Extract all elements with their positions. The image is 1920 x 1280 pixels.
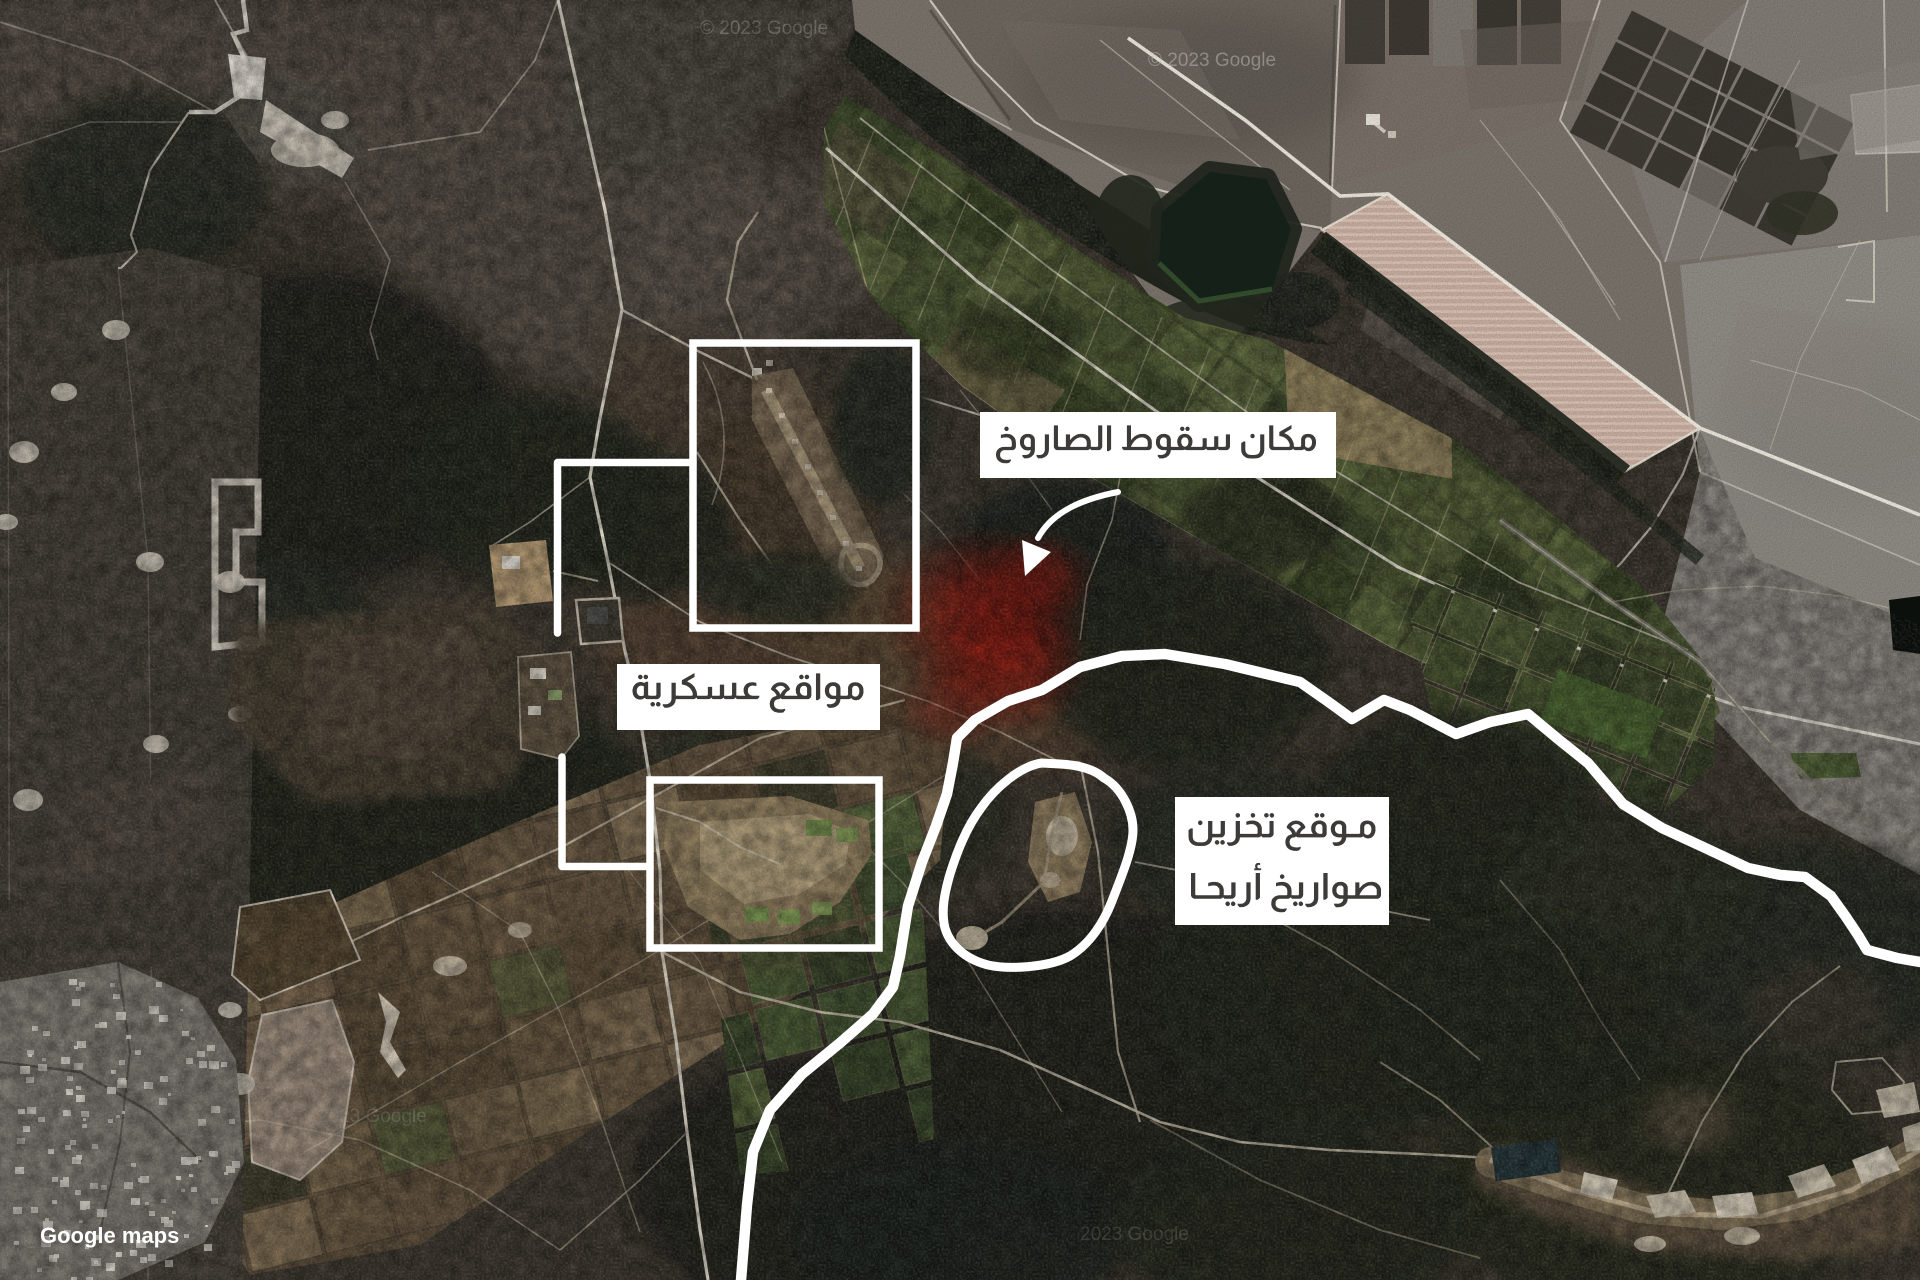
svg-text:Google maps: Google maps bbox=[40, 1223, 179, 1248]
